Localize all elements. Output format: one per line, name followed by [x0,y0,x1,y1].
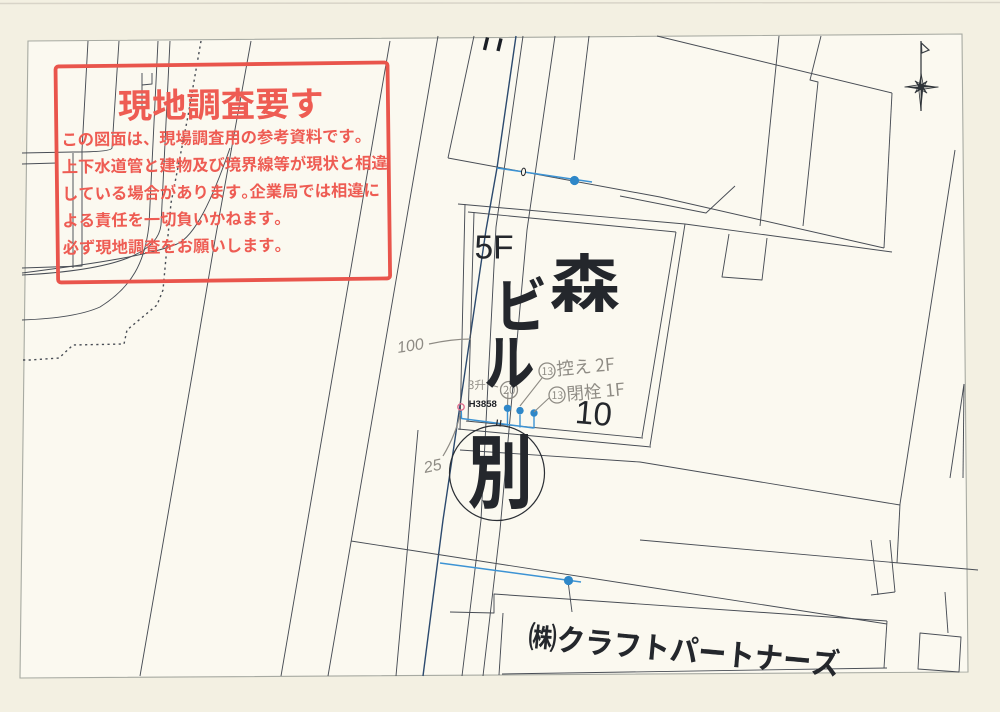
svg-text:10: 10 [574,393,614,433]
svg-text:5F: 5F [475,229,514,266]
svg-text:H3858: H3858 [469,399,498,410]
